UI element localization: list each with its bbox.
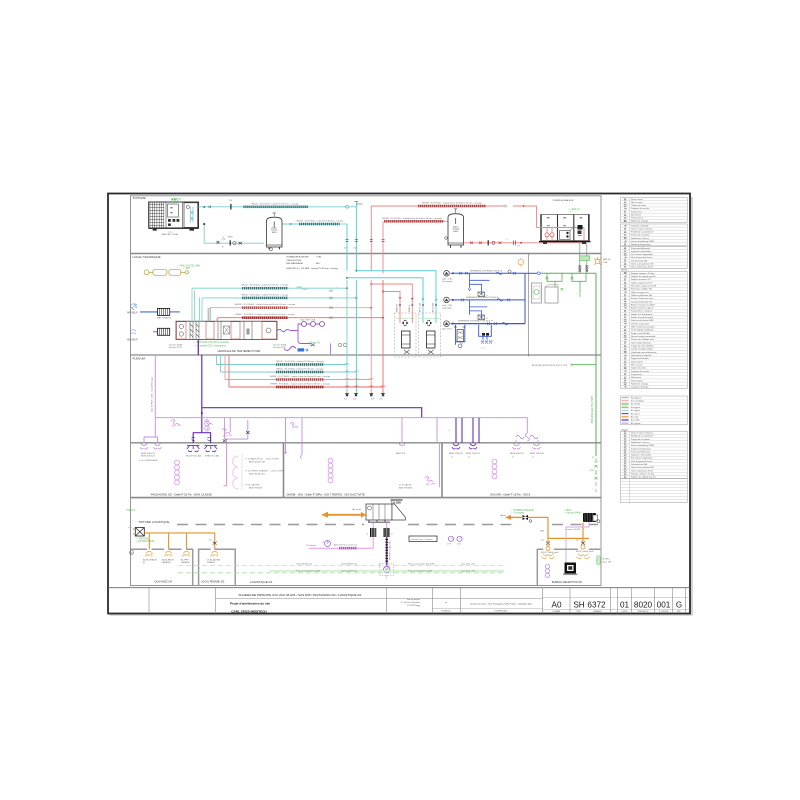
svg-text:001: 001: [657, 600, 671, 609]
svg-text:Recuperateur a plaques: Recuperateur a plaques: [631, 310, 652, 313]
svg-text:Sonde de temperature: Sonde de temperature: [631, 243, 652, 246]
svg-text:8020: 8020: [634, 600, 653, 609]
svg-text:Disconnecteur BA: Disconnecteur BA: [631, 259, 648, 262]
svg-text:TYPE: TYPE: [576, 611, 582, 613]
svg-text:⋆ servo: ⋆ servo: [308, 344, 316, 347]
svg-text:AC reprise: AC reprise: [631, 422, 641, 425]
svg-text:Calorifuge anti-condensation: Calorifuge anti-condensation: [631, 351, 656, 354]
svg-text:Section 2710: Section 2710: [169, 346, 183, 349]
svg-text:LAVAGE: LAVAGE: [162, 561, 171, 564]
svg-text:Site de pringes: Site de pringes: [407, 598, 420, 601]
svg-text:⋆✓⋆: ⋆✓⋆: [568, 211, 573, 214]
svg-text:⊘: ⊘: [532, 456, 534, 459]
svg-text:✓ 2RT: ✓ 2RT: [183, 267, 190, 270]
svg-text:Raccord souple antivibratile: Raccord souple antivibratile: [631, 335, 656, 338]
svg-text:A0: A0: [551, 600, 561, 609]
svg-text:⊘ D: ⊘ D: [457, 543, 461, 546]
svg-text:Section 300lb: Section 300lb: [273, 344, 287, 347]
svg-text:BLURRY 3 4B m³/h: BLURRY 3 4B m³/h: [389, 540, 392, 560]
svg-text:⊘: ⊘: [592, 456, 594, 459]
svg-text:Clapet anti-retour: Clapet anti-retour: [631, 367, 647, 370]
svg-text:LOGISTIQUE I01: LOGISTIQUE I01: [250, 580, 273, 584]
svg-text:Vanne 3 voies motorisee: Vanne 3 voies motorisee: [631, 227, 654, 230]
svg-text:Vanne d'arret: Vanne d'arret: [631, 360, 643, 363]
svg-text:CENTRALE DE TRAITEMENT D'AIR: CENTRALE DE TRAITEMENT D'AIR: [218, 349, 261, 353]
svg-text:Gaine A 400 m/s: Gaine A 400 m/s: [341, 562, 358, 565]
svg-text:LOCAL TECHNIQUE: LOCAL TECHNIQUE: [133, 255, 161, 259]
svg-text:BAT 40: BAT 40: [603, 258, 611, 261]
svg-text:✓ TOITURE: ✓ TOITURE: [136, 538, 149, 541]
svg-text:ECHANGEUR SECHE: ECHANGEUR SECHE: [287, 256, 310, 259]
svg-text:ALIM ARCH: ALIM ARCH: [162, 559, 174, 562]
svg-text:Manometre: Manometre: [631, 376, 642, 379]
svg-text:✓⋆ PAC 2x: ✓⋆ PAC 2x: [568, 208, 580, 211]
svg-text:SERRERIE DISTRIBUTION ECS 2T: SERRERIE DISTRIBUTION ECS 2T: [458, 321, 494, 323]
svg-text:Registre motorise GTC: Registre motorise GTC: [631, 278, 652, 281]
svg-text:⊘: ⊘: [451, 456, 453, 459]
svg-text:Gpe. ECS: Gpe. ECS: [442, 329, 452, 331]
svg-text:FORMAT: FORMAT: [553, 610, 562, 613]
svg-text:6372: 6372: [587, 600, 606, 609]
svg-text:Soupape de securite: Soupape de securite: [631, 370, 650, 373]
svg-text:⊘: ⊘: [367, 533, 369, 536]
svg-text:BDM 125x125: BDM 125x125: [510, 453, 525, 455]
svg-text:Reperage par etiquette: Reperage par etiquette: [631, 354, 652, 357]
svg-text:✓ 2x sondes: ✓ 2x sondes: [511, 512, 525, 515]
svg-text:⊘: ⊘: [468, 456, 470, 459]
svg-text:BTB0 TD LBA: BTB0 TD LBA: [205, 455, 219, 458]
svg-text:AC depart: AC depart: [631, 409, 640, 412]
svg-text:Bouche d'extraction auto: Bouche d'extraction auto: [631, 297, 654, 300]
svg-text:FICHIER DAO: FICHIER DAO: [495, 610, 508, 613]
svg-text:Vanne 3 voies motorisee: Vanne 3 voies motorisee: [631, 431, 654, 434]
svg-text:Vase d'expansion ferme: Vase d'expansion ferme: [631, 461, 653, 463]
svg-text:Ux BP.2: Ux BP.2: [602, 559, 611, 561]
svg-text:RECHAUFFAGE: RECHAUFFAGE: [287, 262, 304, 265]
svg-text:BR-05 - W 2/3 400 - Isolant PU: BR-05 - W 2/3 400 - Isolant PU 30 mm + t…: [277, 368, 325, 371]
svg-text:01: 01: [620, 600, 630, 609]
svg-text:(Air neuf): (Air neuf): [352, 508, 361, 511]
svg-text:Pot a boues magnetique: Pot a boues magnetique: [631, 457, 654, 460]
svg-text:Batterie froide eau glacee: Batterie froide eau glacee: [631, 307, 655, 310]
svg-text:DRAUN: DRAUN: [207, 561, 215, 564]
svg-text:Manometre: Manometre: [631, 213, 642, 216]
svg-text:Pompe de circulation: Pompe de circulation: [631, 438, 650, 441]
svg-text:Qua 4 bis utile: Qua 4 bis utile: [461, 570, 476, 573]
svg-text:N. ORDRE: N. ORDRE: [659, 611, 669, 613]
svg-text:Gaine textile diffusante: Gaine textile diffusante: [631, 341, 652, 344]
svg-text:BR-05 - W 2/3 500 - Isolant PU: BR-05 - W 2/3 500 - Isolant PU 30 mm + t…: [242, 284, 290, 287]
svg-text:Section Trav. Coupree: Section Trav. Coupree: [411, 538, 433, 541]
svg-text:TOITURE LOGISTIQUE: TOITURE LOGISTIQUE: [138, 520, 169, 524]
svg-text:DHOBI - H01 - Dalle P 30Pa - I: DHOBI - H01 - Dalle P 30Pa - ISO 7 REPOS…: [287, 492, 365, 496]
svg-text:Section 300lb: Section 300lb: [169, 344, 183, 347]
svg-text:BDE TROUM: BDE TROUM: [249, 487, 262, 489]
svg-text:① 2x RACK FLUX → Zone P 20Pa: ① 2x RACK FLUX → Zone P 20Pa: [245, 458, 280, 461]
svg-text:Robinet de vidange: Robinet de vidange: [631, 382, 649, 385]
svg-text:PLENUM: PLENUM: [133, 357, 146, 361]
svg-text:② 2x PORTE CHASSIT → Zone P: ② 2x PORTE CHASSIT → Zone P 20Pa: [245, 470, 285, 473]
svg-text:Schéma principe - Zone Packagi: Schéma principe - Zone Packaging - Dalle…: [470, 603, 532, 606]
svg-text:AC souffl.: AC souffl.: [631, 419, 640, 422]
svg-text:Thermometre: Thermometre: [631, 379, 644, 382]
svg-text:Compteur d'energie: Compteur d'energie: [631, 224, 649, 227]
svg-text:POMPE A CHALEUR: POMPE A CHALEUR: [553, 199, 574, 202]
svg-text:BR-05 - W 2/3 400 - Isolant PU: BR-05 - W 2/3 400 - Isolant PU 30 mm + t…: [242, 293, 290, 296]
svg-text:BR-05 - W 2/3 500 - Isolant PU: BR-05 - W 2/3 500 - Isolant PU 30 mm + t…: [252, 202, 300, 205]
svg-text:Clapet coupe-feu CF 1h: Clapet coupe-feu CF 1h: [631, 281, 652, 284]
svg-text:Registre de reglage manuel: Registre de reglage manuel: [631, 275, 656, 278]
svg-text:EHWR - W 4/3 500 - Isolant/Lai: EHWR - W 4/3 500 - Isolant/Laine de Roch…: [382, 217, 442, 220]
svg-text:EHWR - Pr E A100 - Isolant Lai: EHWR - Pr E A100 - Isolant Laine de Roch…: [270, 383, 330, 386]
svg-text:Liaison 14 KW: Liaison 14 KW: [566, 529, 581, 531]
svg-text:Support antivibratile: Support antivibratile: [631, 357, 650, 360]
svg-text:Filtre a tamis: Filtre a tamis: [631, 201, 642, 204]
svg-text:Eau glycol: Eau glycol: [631, 407, 641, 409]
svg-text:Manchette souple classe M1: Manchette souple classe M1: [631, 284, 657, 287]
svg-text:✓ EXTRACTEUR: ✓ EXTRACTEUR: [136, 540, 154, 543]
svg-text:Process pression utile 40M: Process pression utile 40M: [408, 562, 434, 565]
svg-text:✓ BMS KNX GTC 230 V raccordé: ✓ BMS KNX GTC 230 V raccordé: [194, 341, 229, 344]
svg-text:AIR NEUF: AIR NEUF: [127, 312, 138, 315]
svg-text:Volet de surpression: Volet de surpression: [631, 322, 649, 325]
svg-text:BDE 30x30 T-BT: BDE 30x30 T-BT: [249, 461, 266, 463]
svg-text:Gpe 3V RCH +400 - Isolant/Tiss: Gpe 3V RCH +400 - Isolant/Tissage: [151, 376, 154, 412]
svg-text:BOUCHE QUINCONCE PVD P' 425: BOUCHE QUINCONCE PVD P' 425: [532, 365, 568, 367]
svg-text:BDM 125: BDM 125: [396, 453, 406, 455]
svg-text:OT demat: OT demat: [306, 544, 316, 547]
svg-text:Gaine A 400 m/s: Gaine A 400 m/s: [296, 562, 313, 565]
svg-text:Pompe de circulation: Pompe de circulation: [631, 234, 650, 237]
svg-text:BDE TROUM: BDE TROUM: [399, 488, 412, 490]
svg-text:⊙: ⊙: [492, 340, 494, 343]
svg-text:⊘ 2x SOUFFLAGE: ⊘ 2x SOUFFLAGE: [139, 459, 158, 462]
svg-text:BDE 30x30 I-BT: BDE 30x30 I-BT: [249, 473, 265, 475]
svg-text:QUAI AVEC I04: QUAI AVEC I04: [155, 580, 173, 583]
svg-text:Pot a boues magnetique: Pot a boues magnetique: [631, 253, 654, 256]
svg-text:10 ⊘ VALVE: 10 ⊘ VALVE: [399, 484, 412, 487]
svg-text:CARL ZEISS MEDITECH: CARL ZEISS MEDITECH: [231, 609, 267, 613]
svg-text:UNITE: UNITE: [622, 611, 628, 613]
svg-text:SAS 045 - Dalle P 15 Pa - ISO: SAS 045 - Dalle P 15 Pa - ISO 8: [490, 492, 531, 496]
svg-text:Detecteur de fumee DAD: Detecteur de fumee DAD: [631, 319, 654, 322]
svg-text:Flexible de raccordement: Flexible de raccordement: [631, 435, 654, 438]
svg-text:→ 584: → 584: [313, 263, 320, 265]
svg-text:△ △: △ △: [481, 347, 485, 350]
svg-text:AC rejet: AC rejet: [631, 416, 639, 419]
svg-text:CTA: CTA: [603, 261, 608, 264]
svg-text:ANDLER JT60B: ANDLER JT60B: [162, 233, 178, 236]
svg-text:PACKAGING I02 - Dalle P 15 Pa: PACKAGING I02 - Dalle P 15 Pa - NON CLAS…: [151, 492, 212, 496]
svg-text:Process desactivee 40M: Process desactivee 40M: [296, 570, 320, 573]
svg-text:⋆✓: ⋆✓: [505, 238, 508, 241]
svg-text:AL PRE: AL PRE: [181, 559, 189, 562]
svg-text:Clapet anti-retour: Clapet anti-retour: [631, 204, 647, 207]
svg-text:Filtre a tamis: Filtre a tamis: [631, 363, 642, 366]
svg-text:SCHEMA DE PRINCIPE CVC ZAC 06: SCHEMA DE PRINCIPE CVC ZAC 06 H01 / SAS …: [239, 593, 362, 597]
svg-text:EHW 925 @ - 1x2 NRF - Isolant: EHW 925 @ - 1x2 NRF - Isolant PU 30 mm +…: [287, 267, 339, 270]
svg-text:BOUT 30/60 µmH: BOUT 30/60 µmH: [576, 551, 594, 553]
svg-text:EHWF - Pr E A100 - Isolant Lai: EHWF - Pr E A100 - Isolant Laine de Roch…: [235, 313, 295, 316]
svg-text:Gpe. RCH CTA: Gpe. RCH CTA: [300, 319, 315, 322]
svg-text:PLMW 2: PLMW 2: [127, 510, 137, 512]
svg-text:BR-05 500: BR-05 500: [420, 303, 422, 312]
svg-text:Eau chauffage: Eau chauffage: [631, 401, 645, 403]
svg-text:SERRERIE DISTRIBUTION ECS: SERRERIE DISTRIBUTION ECS: [466, 297, 499, 299]
svg-text:✓⁻: ✓⁻: [516, 432, 519, 435]
svg-text:Caisson de filtration G4: Caisson de filtration G4: [631, 300, 653, 303]
svg-text:⊘: ⊘: [391, 533, 393, 536]
svg-text:✓ EAU GLYCOL 30%: ✓ EAU GLYCOL 30%: [178, 264, 200, 267]
svg-text:BR-05 - W 2/3 500 - Isolant PU: BR-05 - W 2/3 500 - Isolant PU 30 mm + t…: [277, 360, 325, 363]
svg-text:ALIM DRAUN: ALIM DRAUN: [143, 559, 157, 562]
svg-text:Qua 4 bis utile: Qua 4 bis utile: [461, 562, 476, 565]
svg-text:Pressostat differentiel: Pressostat differentiel: [631, 247, 651, 250]
svg-text:T.A.028: T.A.028: [391, 500, 401, 504]
svg-text:Process desactivee 40M: Process desactivee 40M: [408, 570, 432, 573]
svg-text:77 183 Pringys: 77 183 Pringys: [407, 605, 420, 607]
svg-text:AIR NEUF: AIR NEUF: [127, 339, 138, 342]
svg-text:Packaging: Packaging: [442, 281, 453, 283]
svg-text:BDM 125x125: BDM 125x125: [449, 453, 464, 455]
svg-text:Compteur d'energie: Compteur d'energie: [631, 386, 649, 389]
svg-text:BOUT 30/60 µmH: BOUT 30/60 µmH: [541, 552, 559, 554]
svg-text:Sonde de temperature: Sonde de temperature: [631, 447, 652, 450]
svg-text:EHWR - W 4/3 500 - Isolant/Lai: EHWR - W 4/3 500 - Isolant/Laine de Roch…: [422, 202, 482, 205]
svg-text:EHWR - Pr 4T A100 - Isolant La: EHWR - Pr 4T A100 - Isolant Laine de Roc…: [270, 375, 331, 378]
svg-text:Eau froide: Eau froide: [631, 404, 641, 406]
svg-text:EHWR - Pr 4T A100 - Isolant La: EHWR - Pr 4T A100 - Isolant Laine de Roc…: [235, 303, 296, 306]
svg-text:Grille exterieure pare-pluie: Grille exterieure pare-pluie: [631, 326, 655, 329]
svg-text:ECHELLE: ECHELLE: [441, 611, 451, 613]
svg-text:AC retour: AC retour: [631, 412, 640, 415]
svg-text:✓ POMPE CHALEUR: ✓ POMPE CHALEUR: [511, 509, 534, 512]
svg-text:Logistique: Logistique: [442, 306, 453, 309]
svg-text:EHWF E: EHWF E: [409, 304, 411, 312]
svg-text:2T AL ADMIN: 2T AL ADMIN: [207, 559, 221, 562]
svg-text:Awtol Donece xp 30 cm: Awtol Donece xp 30 cm: [334, 544, 357, 547]
svg-text:1000L: 1000L: [272, 232, 277, 234]
svg-text:BR-05 - W 2/3 500 - Isolant PU: BR-05 - W 2/3 500 - Isolant PU 30 mm + t…: [297, 220, 345, 223]
svg-text:IND.: IND.: [677, 611, 681, 613]
svg-text:SPECIALITE: SPECIALITE: [638, 610, 650, 613]
svg-text:BR-05 400: BR-05 400: [433, 303, 435, 312]
svg-text:✓⋆: ✓⋆: [448, 429, 452, 432]
svg-text:BDM 125x125: BDM 125x125: [530, 453, 545, 455]
svg-text:Eau glacee: Eau glacee: [631, 397, 642, 399]
svg-text:Vanne d'equilibrage STAD: Vanne d'equilibrage STAD: [631, 444, 655, 447]
svg-text:⋇BCⁿⁿ: ⋇BCⁿⁿ: [171, 198, 182, 202]
svg-text:MPS: MPS: [228, 237, 233, 239]
svg-text:Gaine isolee laine 25mm: Gaine isolee laine 25mm: [631, 266, 653, 268]
svg-text:EHWR 4T: EHWR 4T: [397, 303, 399, 312]
svg-text:Thermometre: Thermometre: [631, 217, 644, 220]
svg-text:AFFAIRE: AFFAIRE: [594, 610, 603, 613]
svg-text:Joins 7W: Joins 7W: [602, 562, 612, 564]
svg-text:Trappe de visite 300x300: Trappe de visite 300x300: [631, 344, 654, 347]
svg-text:BUREAU RECEPTION I05: BUREAU RECEPTION I05: [552, 581, 582, 584]
svg-text:BOUCHE EAU PVC P'425: BOUCHE EAU PVC P'425: [591, 395, 594, 423]
svg-text:PRODUCTION: PRODUCTION: [287, 260, 302, 262]
svg-text:Degazeur micro-bulles: Degazeur micro-bulles: [631, 455, 651, 457]
svg-text:Registre de reglage manuel: Registre de reglage manuel: [631, 476, 656, 479]
svg-text:Vanne d'equilibrage STAD: Vanne d'equilibrage STAD: [631, 240, 655, 243]
svg-text:③ CF. VALVES: ③ CF. VALVES: [245, 484, 260, 487]
svg-text:BAT. CHAUDE: BAT. CHAUDE: [157, 317, 172, 320]
svg-text:BDM 125x125: BDM 125x125: [141, 455, 156, 457]
svg-text:✓: ✓: [576, 293, 578, 296]
svg-text:Piquage conique a 45 deg: Piquage conique a 45 deg: [631, 474, 654, 476]
svg-text:Pressostat differentiel: Pressostat differentiel: [631, 450, 651, 453]
svg-text:✓⁻: ✓⁻: [219, 203, 222, 206]
svg-text:Projet d'amélioration du site: Projet d'amélioration du site: [230, 601, 271, 605]
svg-text:Vanne d'arret: Vanne d'arret: [631, 198, 643, 201]
svg-text:⊘: ⊘: [512, 456, 514, 459]
svg-text:G: G: [676, 601, 682, 610]
svg-text:Gaine isolee laine 25mm: Gaine isolee laine 25mm: [631, 470, 653, 472]
svg-text:Debitmetre a lecture: Debitmetre a lecture: [631, 237, 650, 240]
svg-text:1000L: 1000L: [453, 231, 458, 233]
svg-text:⊙: ⊙: [486, 317, 488, 320]
svg-text:Cordon chauffant antigel: Cordon chauffant antigel: [631, 348, 653, 351]
svg-text:Gaine acier galvanise M0: Gaine acier galvanise M0: [631, 467, 654, 469]
svg-text:LAVAGE: LAVAGE: [181, 561, 190, 564]
svg-text:Clapets: Clapets: [621, 428, 628, 431]
svg-text:Debitmetre a lecture: Debitmetre a lecture: [631, 441, 650, 444]
svg-text:TOITURE: TOITURE: [133, 196, 146, 200]
svg-text:✓ raccord 14kW: ✓ raccord 14kW: [564, 512, 582, 515]
svg-text:Robinet de vidange: Robinet de vidange: [631, 220, 649, 223]
svg-text:SH: SH: [573, 600, 584, 609]
svg-text:Soupape de securite: Soupape de securite: [631, 207, 650, 210]
svg-text:(Aout): (Aout): [500, 514, 506, 517]
svg-text:Disconnecteur BA: Disconnecteur BA: [631, 463, 648, 466]
svg-text:→ 1 580: → 1 580: [313, 257, 322, 259]
svg-text:Batterie chaude eau 30kW: Batterie chaude eau 30kW: [631, 303, 655, 306]
svg-text:BLDB T00 LBA: BLDB T00 LBA: [186, 455, 201, 458]
svg-text:✓ Vanne 3V: ✓ Vanne 3V: [308, 342, 321, 345]
svg-text:BDM 125x125: BDM 125x125: [466, 453, 481, 455]
svg-text:27, rue Paul Langevin: 27, rue Paul Langevin: [401, 602, 420, 604]
svg-text:⊘ P: ⊘ P: [447, 543, 451, 546]
svg-text:✓ BXC ⋆: ✓ BXC ⋆: [564, 509, 574, 512]
svg-text:Flexible de raccordement: Flexible de raccordement: [631, 231, 654, 234]
svg-text:Gaine A 400 m/s: Gaine A 400 m/s: [341, 570, 358, 573]
svg-text:LOCAL PENNSE I03: LOCAL PENNSE I03: [201, 580, 225, 583]
